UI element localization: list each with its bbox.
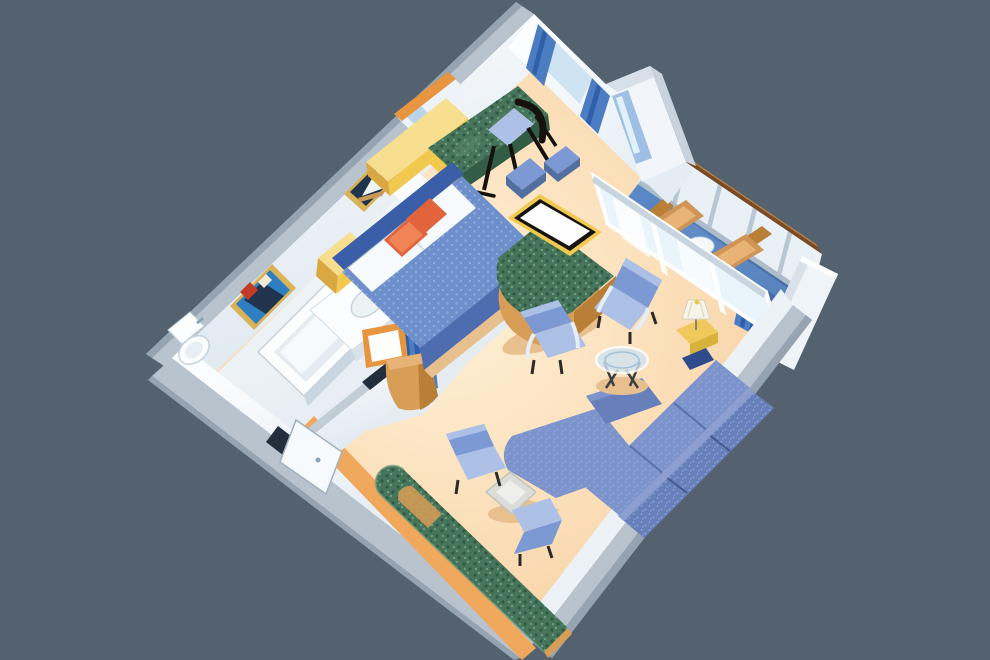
floorplan-canvas xyxy=(0,0,990,660)
lamp-finial xyxy=(695,300,700,305)
suite-floorplan-illustration xyxy=(0,0,990,660)
door-handle xyxy=(316,458,321,463)
